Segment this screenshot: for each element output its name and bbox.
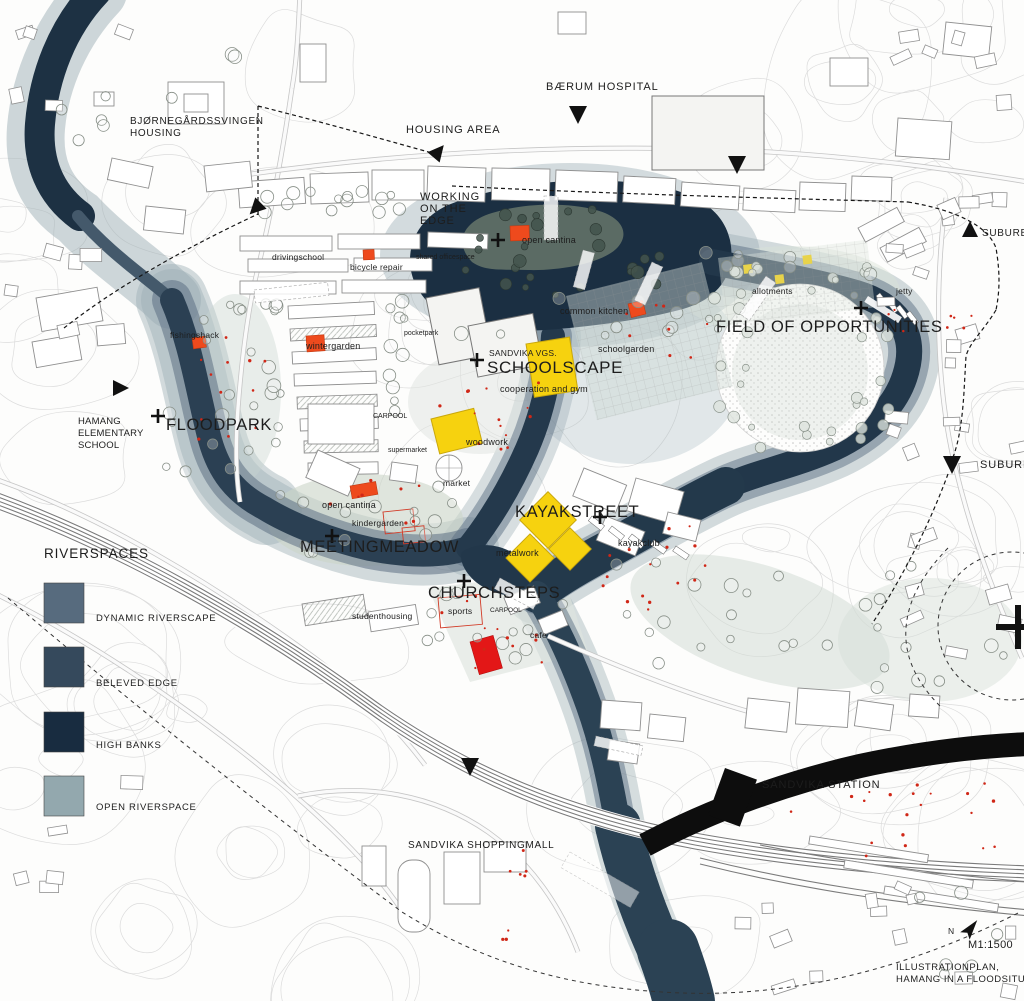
hospital-strip-buildings xyxy=(238,12,992,213)
label-wintergarden: wintergarden xyxy=(305,341,360,351)
label-studenthousing: studenthousing xyxy=(352,611,413,621)
station-buildings xyxy=(745,688,940,732)
caption-line-2: HAMANG IN A FLOODSITUATION xyxy=(896,974,1024,985)
label-cooperation-and-gym: cooperation and gym xyxy=(500,384,588,394)
site-plan-map: RIVERSPACES DYNAMIC RIVERSCAPE BELEVED E… xyxy=(0,0,1024,1001)
legend-title: RIVERSPACES xyxy=(44,546,149,561)
scale-label: M1:1500 xyxy=(968,939,1013,951)
bjornegard-buildings xyxy=(94,82,252,234)
legend-swatch-dynamic-riverscape xyxy=(44,583,84,623)
label-cafe: cafe xyxy=(530,630,547,640)
label-kayakclub: kayakclub xyxy=(618,538,660,548)
label-bicycle-repair: bicycle repair xyxy=(350,262,403,272)
legend-swatch-high-banks xyxy=(44,712,84,752)
label-market: market xyxy=(443,478,471,488)
label-sandvika-shoppingmall: SANDVIKA SHOPPINGMALL xyxy=(408,840,554,851)
label-baerum-hospital: BÆRUM HOSPITAL xyxy=(546,81,659,93)
label-working-1: WORKING xyxy=(420,191,480,203)
label-sandvika-station: SANDVIKA STATION xyxy=(762,779,881,791)
label-open-cantina-north: open cantina xyxy=(522,235,576,245)
legend-label-dynamic-riverscape: DYNAMIC RIVERSCAPE xyxy=(96,613,216,624)
west-housing-rows xyxy=(288,301,378,474)
label-suburbia-top: SUBURBIA xyxy=(982,228,1024,239)
label-carpool-west: CARPOOL xyxy=(373,413,407,420)
legend-label-high-banks: HIGH BANKS xyxy=(96,740,162,751)
label-churchsteps: CHURCHSTEPS xyxy=(428,584,560,602)
label-fishingshack: fishingshack xyxy=(170,330,220,340)
label-common-kitchen: common kitchen xyxy=(560,306,628,316)
label-working-3: EDGE xyxy=(420,215,455,227)
label-supermarket: supermarket xyxy=(388,447,427,454)
label-woodwork: woodwork xyxy=(465,437,508,447)
label-sandvika-vgs: SANDVIKA VGS. xyxy=(489,348,557,358)
label-hamang-3: SCHOOL xyxy=(78,440,119,451)
label-bjornegardssvingen-1: BJØRNEGÅRDSSVINGEN xyxy=(130,114,264,127)
label-drivingschool: drivingschool xyxy=(272,252,324,262)
label-housing-area: HOUSING AREA xyxy=(406,124,501,136)
label-metalwork: metalwork xyxy=(496,548,539,558)
label-hamang-1: HAMANG xyxy=(78,416,121,427)
hamang-school-buildings xyxy=(32,287,126,367)
legend-label-open-riverspace: OPEN RIVERSPACE xyxy=(96,802,197,813)
label-shared-officespace: shared officespace xyxy=(416,254,475,261)
label-allotments: allotments xyxy=(752,286,793,296)
label-pocketpark: pocketpark xyxy=(404,330,439,337)
north-arrow-icon xyxy=(960,916,982,939)
label-jetty: jetty xyxy=(895,286,913,296)
label-meetingmeadow: MEETINGMEADOW xyxy=(300,538,459,556)
label-field-of-opportunities: FIELD OF OPPORTUNITIES xyxy=(716,318,943,336)
label-floodpark: FLOODPARK xyxy=(166,416,272,434)
label-hamang-2: ELEMENTARY xyxy=(78,428,144,439)
label-kayakstreet: KAYAKSTREET xyxy=(515,503,639,521)
caption-line-1: ILLUSTRATIONPLAN, xyxy=(896,962,999,973)
legend-swatch-beleved-edge xyxy=(44,647,84,687)
label-suburbia-bottom: SUBURBIA xyxy=(980,459,1024,471)
annotation-block: N M1:1500 ILLUSTRATIONPLAN, HAMANG IN A … xyxy=(896,916,1024,985)
label-working-2: ON THE xyxy=(420,203,467,215)
label-open-cantina-meadow: open cantina xyxy=(322,500,376,510)
label-sports: sports xyxy=(448,606,472,616)
illustration-plan-page: RIVERSPACES DYNAMIC RIVERSCAPE BELEVED E… xyxy=(0,0,1024,1001)
label-schoolgarden: schoolgarden xyxy=(598,344,654,354)
label-carpool-church: CARPOOL xyxy=(490,607,522,614)
label-kindergarden: kindergarden xyxy=(352,518,404,528)
legend-label-beleved-edge: BELEVED EDGE xyxy=(96,678,178,689)
legend-swatch-open-riverspace xyxy=(44,776,84,816)
label-bjornegardssvingen-2: HOUSING xyxy=(130,128,182,139)
label-schoolscape: SCHOOLSCAPE xyxy=(487,358,623,377)
houses-bottom-center xyxy=(735,903,823,995)
north-label: N xyxy=(948,926,954,936)
